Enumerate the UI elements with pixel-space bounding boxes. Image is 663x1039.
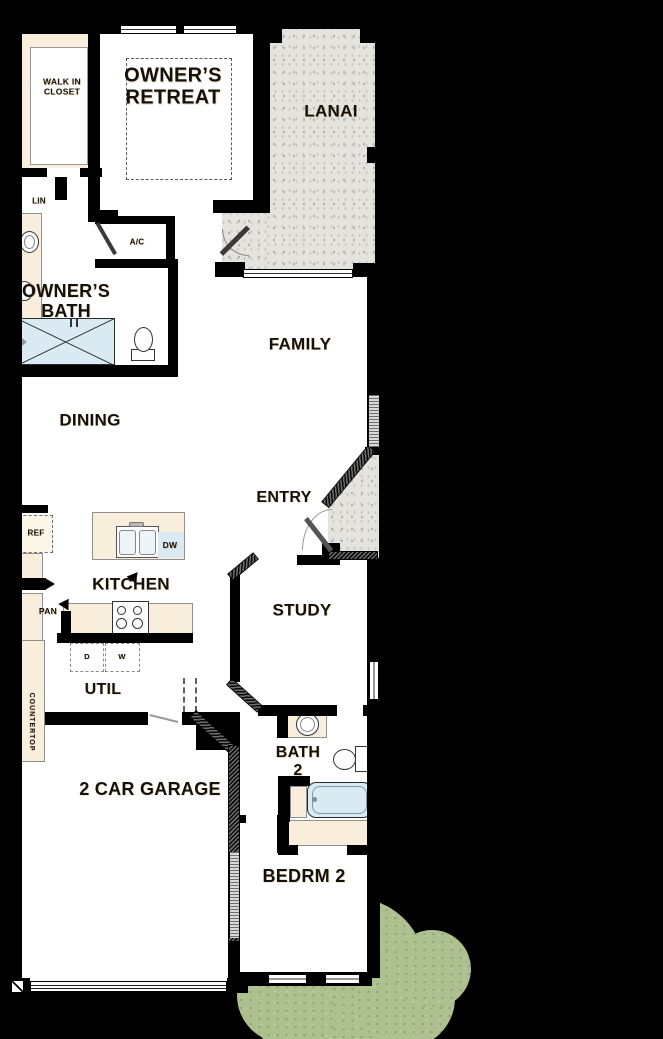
wall-segment: [14, 505, 48, 513]
room-garage: [22, 712, 228, 985]
shower-drain-icon: [22, 338, 27, 346]
dining-label: DINING: [59, 410, 120, 429]
bathtub: [307, 782, 372, 818]
ac-label: A/C: [130, 239, 145, 248]
window: [368, 395, 380, 447]
bedrm2-closet-shelf: [287, 820, 372, 846]
wall-segment: [253, 25, 270, 212]
wall-segment: [10, 365, 178, 377]
window: [325, 974, 360, 984]
door-opening: [47, 168, 80, 177]
sink-basin: [300, 717, 315, 732]
window: [369, 661, 379, 700]
toilet-icon: [134, 327, 153, 352]
shrub: [393, 930, 471, 1008]
bath2-label: BATH 2: [276, 744, 320, 780]
wall-segment: [277, 708, 288, 738]
window: [183, 25, 237, 34]
owners-retreat-label: OWNER’S RETREAT: [124, 65, 222, 110]
pan-label: PAN: [39, 607, 57, 617]
floor-plan: WALK IN CLOSET OWNER’S RETREAT LANAI LIN…: [0, 0, 663, 1039]
wall-segment: [88, 33, 100, 175]
shower: [18, 318, 115, 365]
ref-label: REF: [28, 530, 45, 539]
burner-icon: [117, 606, 126, 615]
wall-segment: [367, 558, 380, 663]
cased-opening: [183, 678, 185, 712]
walk-in-closet-label: WALK IN CLOSET: [43, 77, 81, 96]
wall-segment: [14, 578, 46, 590]
wall-segment: [215, 262, 245, 277]
sliding-glass-door: [243, 269, 353, 278]
window: [268, 974, 307, 984]
sink-bowl: [139, 530, 156, 555]
dw-label: DW: [163, 541, 178, 551]
lanai-patio: [267, 27, 378, 277]
wall-segment: [367, 712, 380, 978]
wall-segment: [45, 712, 148, 725]
burner-icon: [133, 606, 142, 615]
sink-basin: [24, 235, 35, 249]
wall-segment: [258, 705, 337, 716]
wall-segment: [95, 216, 175, 224]
walk-in-closet-floor: [30, 47, 88, 165]
swing-arrow-icon: [45, 578, 55, 590]
faucet-icon: [129, 522, 144, 527]
family-label: FAMILY: [269, 334, 332, 353]
burner-icon: [116, 618, 127, 629]
lin-label: LIN: [32, 198, 46, 207]
window: [120, 25, 177, 34]
range-stove: [112, 601, 149, 635]
wall-segment: [57, 633, 193, 643]
util-label: UTIL: [85, 681, 122, 699]
wall-segment: [228, 940, 240, 978]
tub-deck: [290, 786, 307, 818]
driveway-corner-mark: [11, 980, 24, 993]
toilet-icon: [333, 749, 356, 770]
wall-segment: [278, 845, 298, 855]
wall-segment: [367, 277, 380, 397]
wall-segment: [61, 611, 71, 633]
cased-opening: [195, 678, 197, 712]
garage-label: 2 CAR GARAGE: [79, 779, 221, 799]
kitchen-label: KITCHEN: [92, 574, 170, 593]
dryer-label: D: [84, 653, 90, 661]
owners-bath-label: OWNER’S BATH: [22, 281, 110, 321]
window: [229, 852, 240, 938]
wall-segment: [95, 259, 175, 268]
wall-segment: [168, 259, 178, 377]
wall-segment: [367, 147, 380, 163]
sink-bowl: [119, 530, 136, 555]
entry-label: ENTRY: [256, 489, 311, 507]
tub-rim: [312, 786, 367, 814]
wall-segment: [230, 575, 240, 682]
lanai-label: LANAI: [304, 101, 357, 120]
wall-segment: [353, 263, 380, 277]
porch-wall: [328, 551, 378, 560]
washer-label: W: [118, 653, 125, 661]
garage-door: [30, 981, 227, 992]
burner-icon: [132, 618, 143, 629]
wall-segment: [55, 177, 67, 200]
study-label: STUDY: [272, 600, 331, 619]
wall-segment: [213, 200, 270, 213]
tub-faucet-icon: [312, 797, 317, 802]
countertop-label: COUNTERTOP: [27, 693, 35, 752]
bedrm2-label: BEDRM 2: [262, 866, 345, 886]
